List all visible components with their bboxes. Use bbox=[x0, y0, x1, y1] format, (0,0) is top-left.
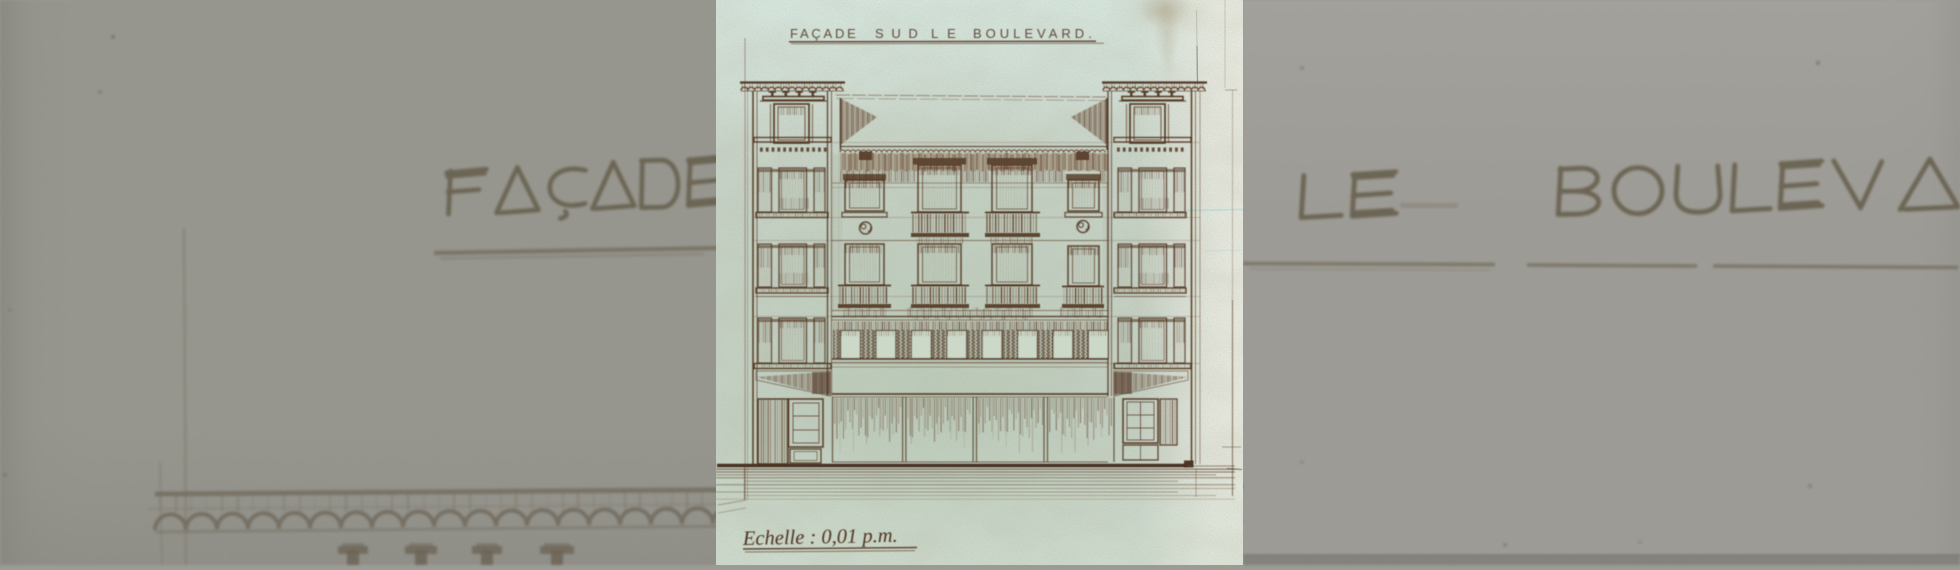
svg-text:FAÇADE: FAÇADE bbox=[790, 26, 858, 41]
svg-text:SUD: SUD bbox=[875, 26, 920, 41]
svg-text:BOULEVARD.: BOULEVARD. bbox=[973, 26, 1094, 41]
svg-text:Echelle : 0,01 p.m.: Echelle : 0,01 p.m. bbox=[742, 525, 898, 550]
